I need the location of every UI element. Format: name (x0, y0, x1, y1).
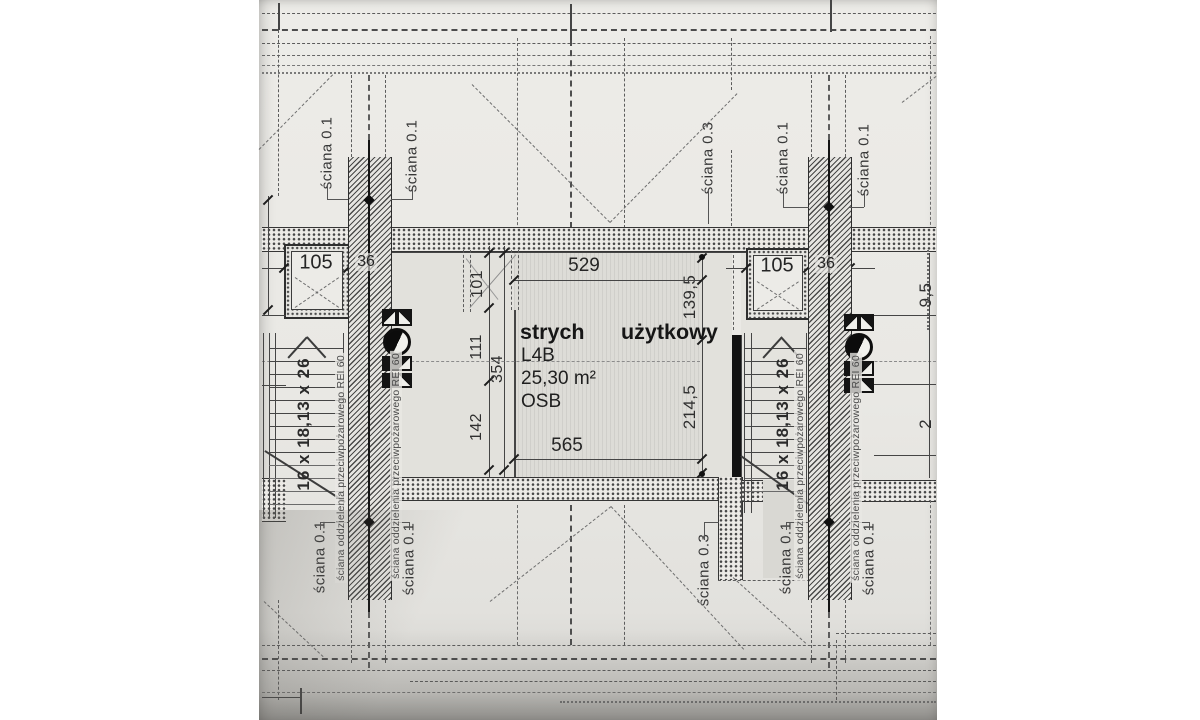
wall-label-01: ściana 0.1 (775, 122, 792, 194)
chimney-vent-icon (844, 314, 859, 331)
roof-edge-line (262, 692, 936, 693)
edge-dim-fragment: 9,5 (916, 283, 936, 308)
firewall-label: ściana oddzielenia przeciwpożarowego REI… (794, 351, 806, 581)
leader-line (327, 199, 348, 200)
leader-line (783, 190, 784, 207)
roof-edge-line (262, 55, 936, 56)
room-floor-material: OSB (521, 391, 561, 413)
dim-label-529: 529 (568, 255, 600, 277)
grid-axis-line (278, 3, 280, 30)
leader-line (412, 188, 413, 200)
firewall-label: ściana oddzielenia przeciwpożarowego REI… (335, 353, 347, 583)
grid-axis-line (517, 38, 518, 250)
stair-stringer-line (751, 333, 752, 513)
stair-enclosure-line (741, 335, 742, 515)
floorplan-photo: 105 105 101 111 142 354 (0, 0, 1200, 720)
shaft-dim-label: 105 (299, 252, 332, 275)
wall-label-01: ściana 0.1 (856, 124, 873, 196)
wall-label-01: ściana 0.1 (861, 523, 878, 595)
grid-axis-line (278, 30, 279, 196)
leader-line (391, 199, 412, 200)
leader-line (786, 522, 787, 530)
leader-line (704, 522, 705, 540)
stair-spec-label: 16 x 18,13 x 26 (294, 357, 314, 490)
chimney-vent-icon (397, 309, 412, 326)
dim-label-142: 142 (468, 413, 486, 441)
grid-axis-line (830, 0, 832, 32)
stair-tread (269, 348, 343, 349)
dim-label-111: 111 (468, 334, 486, 360)
grid-axis-line (570, 4, 572, 40)
roof-edge-line (262, 670, 936, 671)
roof-edge-line (410, 681, 936, 682)
leader-line (708, 190, 709, 224)
dim-label-36: 36 (355, 253, 377, 271)
dim-label-565: 565 (551, 435, 583, 457)
masonry-band-bottom (262, 478, 286, 522)
wall-label-01: ściana 0.1 (401, 523, 418, 595)
grid-axis-line (836, 640, 837, 700)
firewall-label: ściana oddzielenia przeciwpożarowego REI… (390, 351, 402, 581)
stair-spec-label: 16 x 18,13 x 26 (773, 357, 793, 490)
edge-dim-fragment: 2 (916, 419, 936, 429)
wall-label-01: ściana 0.1 (312, 521, 329, 593)
grid-axis-line (570, 505, 572, 645)
roof-edge-line (836, 633, 936, 634)
stair-tread (269, 504, 343, 505)
partition-hidden-line (733, 255, 734, 330)
stair-stringer-line (744, 333, 745, 513)
roof-corner-line (300, 688, 302, 714)
leader-line (704, 522, 719, 523)
edge-dim-clip: 9,5 2 (900, 248, 937, 480)
stair-stringer-line (806, 333, 807, 513)
roof-edge-line (262, 645, 936, 646)
wall-hidden-line (828, 75, 830, 140)
grid-axis-line (570, 40, 572, 228)
shaft-dim-label: 105 (760, 255, 793, 278)
roof-edge-line (262, 658, 936, 660)
wall-label-01: ściana 0.1 (319, 117, 336, 189)
roof-edge-line (262, 13, 936, 14)
chimney-vent-icon (859, 314, 874, 331)
room-unit-code: L4B (521, 345, 555, 367)
wall-hidden-line (368, 75, 370, 140)
wall-hidden-line (351, 75, 352, 157)
dim-label-101: 101 (469, 270, 487, 298)
leader-line (869, 522, 870, 530)
dim-label-36: 36 (815, 255, 837, 273)
roof-edge-line (262, 29, 936, 31)
wall-hidden-line (351, 600, 352, 663)
grid-axis-line (930, 36, 931, 250)
roof-edge-dotted-line (262, 72, 936, 74)
dim-line (850, 268, 875, 269)
room-name-word1: strych (520, 320, 585, 345)
leader-line (864, 192, 865, 207)
stair-stringer-line (263, 333, 264, 518)
firewall-label: ściana oddzielenia przeciwpożarowego REI… (850, 353, 862, 583)
wall-center-line (368, 140, 371, 612)
masonry-band-bottom (391, 477, 718, 501)
dim-label-214-5: 214,5 (680, 385, 700, 430)
grid-axis-line (930, 500, 931, 645)
wall-label-01: ściana 0.1 (404, 120, 421, 192)
masonry-strip-vertical (718, 477, 743, 580)
room-left-edge-line (514, 310, 516, 477)
roof-edge-line (262, 43, 936, 44)
grid-axis-line (624, 505, 625, 645)
grid-axis-line (731, 150, 732, 226)
wall-hidden-line (385, 600, 386, 663)
dim-line (514, 280, 702, 281)
neighbor-line (262, 315, 286, 316)
wall-hidden-line (385, 75, 386, 157)
opening-dashed-line (463, 250, 464, 312)
leader-line (783, 207, 809, 208)
wall-hidden-line (811, 600, 812, 663)
room-name-word2: użytkowy (621, 320, 718, 345)
roof-corner-line (262, 697, 300, 698)
roof-edge-dotted-line (560, 701, 936, 703)
room-area-value: 25,30 m² (521, 368, 596, 390)
leader-line (320, 522, 321, 530)
dim-label-139-5: 139,5 (680, 275, 700, 320)
grid-axis-line (731, 38, 732, 90)
grid-axis-line (624, 38, 625, 228)
wall-hidden-line (845, 600, 846, 663)
dim-label-354: 354 (489, 355, 507, 383)
dim-endpoint-dot (699, 471, 705, 477)
roof-edge-line (262, 65, 936, 66)
leader-line (327, 184, 328, 200)
wall-hidden-line (811, 75, 812, 157)
dim-line (514, 459, 702, 460)
dim-endpoint-dot (699, 254, 705, 260)
wall-hidden-line (845, 75, 846, 157)
leader-line (409, 522, 410, 530)
leader-line (849, 207, 864, 208)
chimney-vent-icon (382, 309, 397, 326)
wall-label-03: ściana 0.3 (700, 122, 717, 194)
wall-label-03: ściana 0.3 (696, 534, 713, 606)
grid-axis-line (517, 505, 518, 645)
wall-label-01: ściana 0.1 (778, 522, 795, 594)
dim-line (702, 256, 703, 475)
neighbor-dim-line (268, 196, 269, 316)
stair-tread (745, 348, 806, 349)
